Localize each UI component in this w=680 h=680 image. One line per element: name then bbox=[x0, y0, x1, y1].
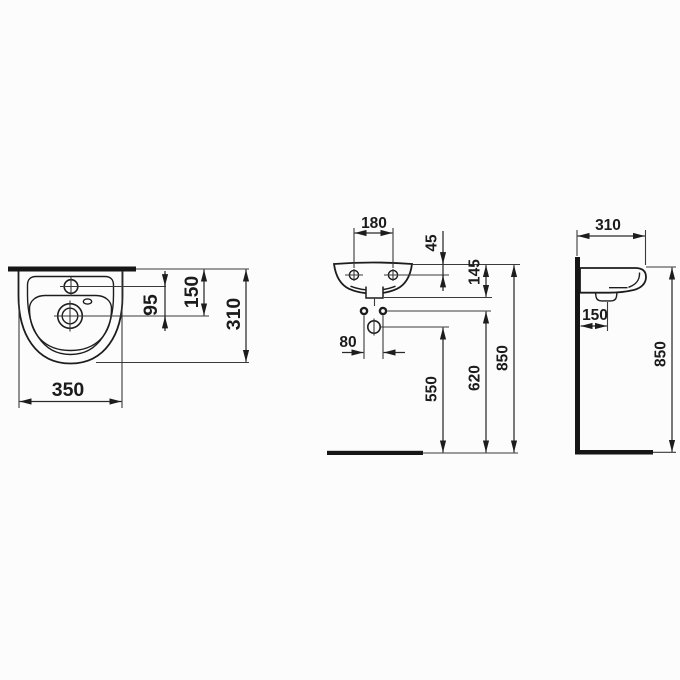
washbasin-technical-drawing: 95 150 310 350 bbox=[0, 0, 680, 680]
side-view: 310 150 850 bbox=[575, 217, 676, 455]
dimension-label: 150 bbox=[582, 307, 608, 324]
dim-edge-to-drain: 150 bbox=[181, 270, 204, 316]
dimension-label: 310 bbox=[595, 217, 621, 234]
supply-hole-left bbox=[361, 308, 367, 314]
floor-line bbox=[575, 450, 653, 455]
dimension-label: 150 bbox=[181, 276, 203, 309]
dim-edge-to-holes: 45 bbox=[424, 231, 444, 291]
dim-edge-to-underside: 145 bbox=[467, 259, 487, 297]
dimension-label: 145 bbox=[467, 259, 484, 285]
wall-line bbox=[575, 257, 580, 454]
wall-line bbox=[8, 267, 136, 272]
dimension-label: 850 bbox=[653, 341, 670, 367]
dim-wall-to-waste: 150 bbox=[581, 307, 608, 326]
basin-side-outline bbox=[580, 268, 646, 293]
supply-hole-right bbox=[380, 308, 386, 314]
dimension-label: 550 bbox=[424, 376, 441, 402]
dim-overall-depth-side: 310 bbox=[578, 217, 645, 236]
floor-line bbox=[327, 451, 423, 455]
dim-supply-spacing: 80 bbox=[339, 334, 405, 353]
waste-outlet bbox=[366, 287, 383, 299]
dimension-label: 80 bbox=[339, 334, 356, 351]
dimension-label: 45 bbox=[424, 234, 441, 252]
top-view: 95 150 310 350 bbox=[8, 267, 249, 409]
drawing-canvas: 95 150 310 350 bbox=[0, 0, 680, 680]
dimension-label: 310 bbox=[223, 298, 245, 331]
dim-fixing-hole-spacing: 180 bbox=[355, 215, 393, 233]
dim-tap-to-drain: 95 bbox=[140, 271, 165, 331]
dim-overall-depth: 310 bbox=[223, 270, 246, 362]
trap-hole bbox=[368, 319, 380, 336]
dimension-label: 850 bbox=[495, 345, 512, 371]
dimension-label: 95 bbox=[140, 294, 162, 316]
dimension-label: 350 bbox=[52, 379, 85, 401]
dim-floor-to-rim: 850 bbox=[495, 265, 515, 452]
dim-floor-to-rim-side: 850 bbox=[653, 268, 673, 452]
dimension-label: 620 bbox=[467, 365, 484, 391]
front-view: 180 45 145 80 550 620 bbox=[327, 215, 520, 455]
dim-floor-to-waste: 550 bbox=[424, 328, 444, 453]
dimension-label: 180 bbox=[361, 215, 387, 232]
dim-overall-width: 350 bbox=[20, 379, 122, 402]
waste-trap-profile bbox=[596, 293, 618, 301]
dim-floor-to-supply: 620 bbox=[467, 312, 487, 453]
